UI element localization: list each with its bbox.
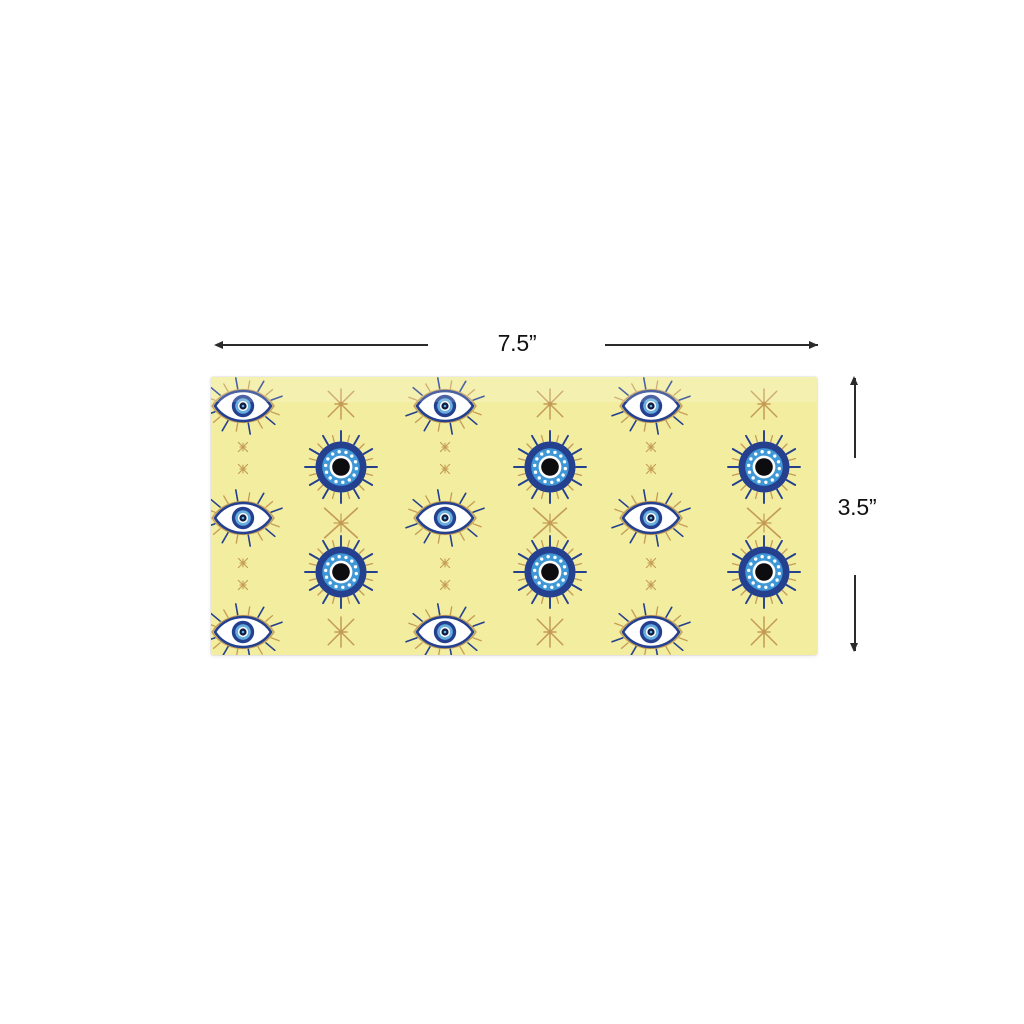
small-sparkle-motif bbox=[238, 580, 247, 589]
arrowhead-right-icon bbox=[809, 341, 818, 349]
height-dimension-line-bottom bbox=[854, 575, 856, 651]
product-tissue-paper bbox=[211, 377, 817, 655]
small-sparkle-motif bbox=[440, 442, 449, 451]
width-dimension-line-right bbox=[605, 344, 818, 346]
small-sparkle-motif bbox=[440, 464, 449, 473]
small-sparkle-motif bbox=[646, 464, 655, 473]
arrowhead-left-icon bbox=[214, 341, 223, 349]
height-dimension-line-top bbox=[854, 378, 856, 458]
height-dimension-label: 3.5” bbox=[807, 494, 907, 521]
arrowhead-up-icon bbox=[850, 376, 858, 385]
width-dimension-label: 7.5” bbox=[467, 330, 567, 357]
width-dimension-line-left bbox=[216, 344, 428, 346]
small-sparkle-motif bbox=[238, 442, 247, 451]
small-sparkle-motif bbox=[238, 464, 247, 473]
arrowhead-down-icon bbox=[850, 643, 858, 652]
small-sparkle-motif bbox=[646, 580, 655, 589]
small-sparkle-motif bbox=[646, 558, 655, 567]
small-sparkle-motif bbox=[440, 558, 449, 567]
product-mockup-canvas: 7.5” 3.5” bbox=[0, 0, 1024, 1024]
small-sparkle-motif bbox=[238, 558, 247, 567]
small-sparkle-motif bbox=[646, 442, 655, 451]
evil-eye-pattern bbox=[211, 377, 817, 655]
small-sparkle-motif bbox=[440, 580, 449, 589]
